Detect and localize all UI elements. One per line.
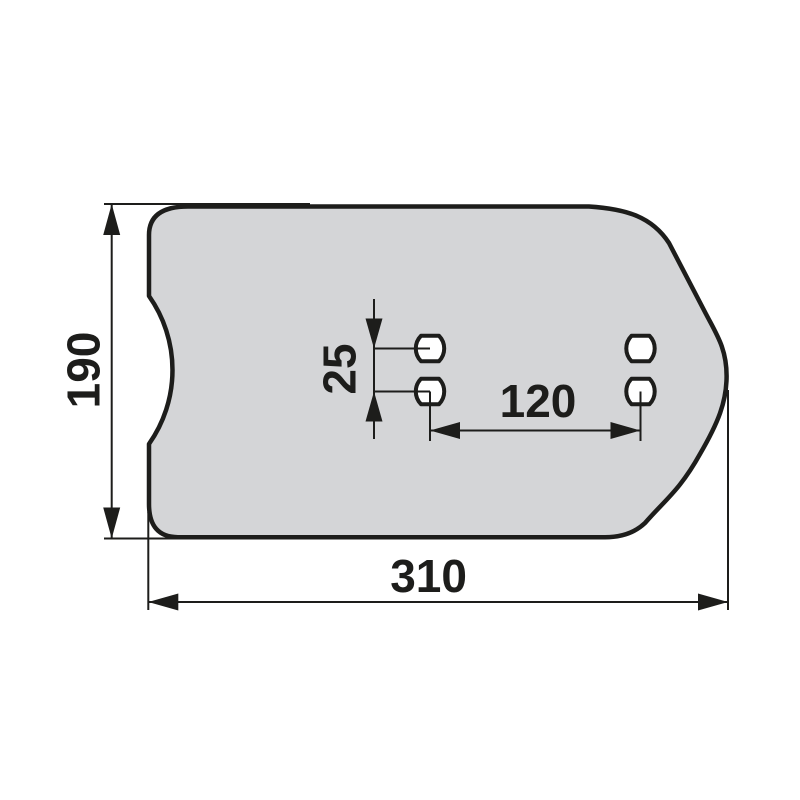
svg-text:25: 25 (314, 343, 366, 394)
svg-text:310: 310 (390, 550, 467, 602)
svg-text:190: 190 (58, 332, 110, 409)
svg-text:120: 120 (500, 375, 577, 427)
